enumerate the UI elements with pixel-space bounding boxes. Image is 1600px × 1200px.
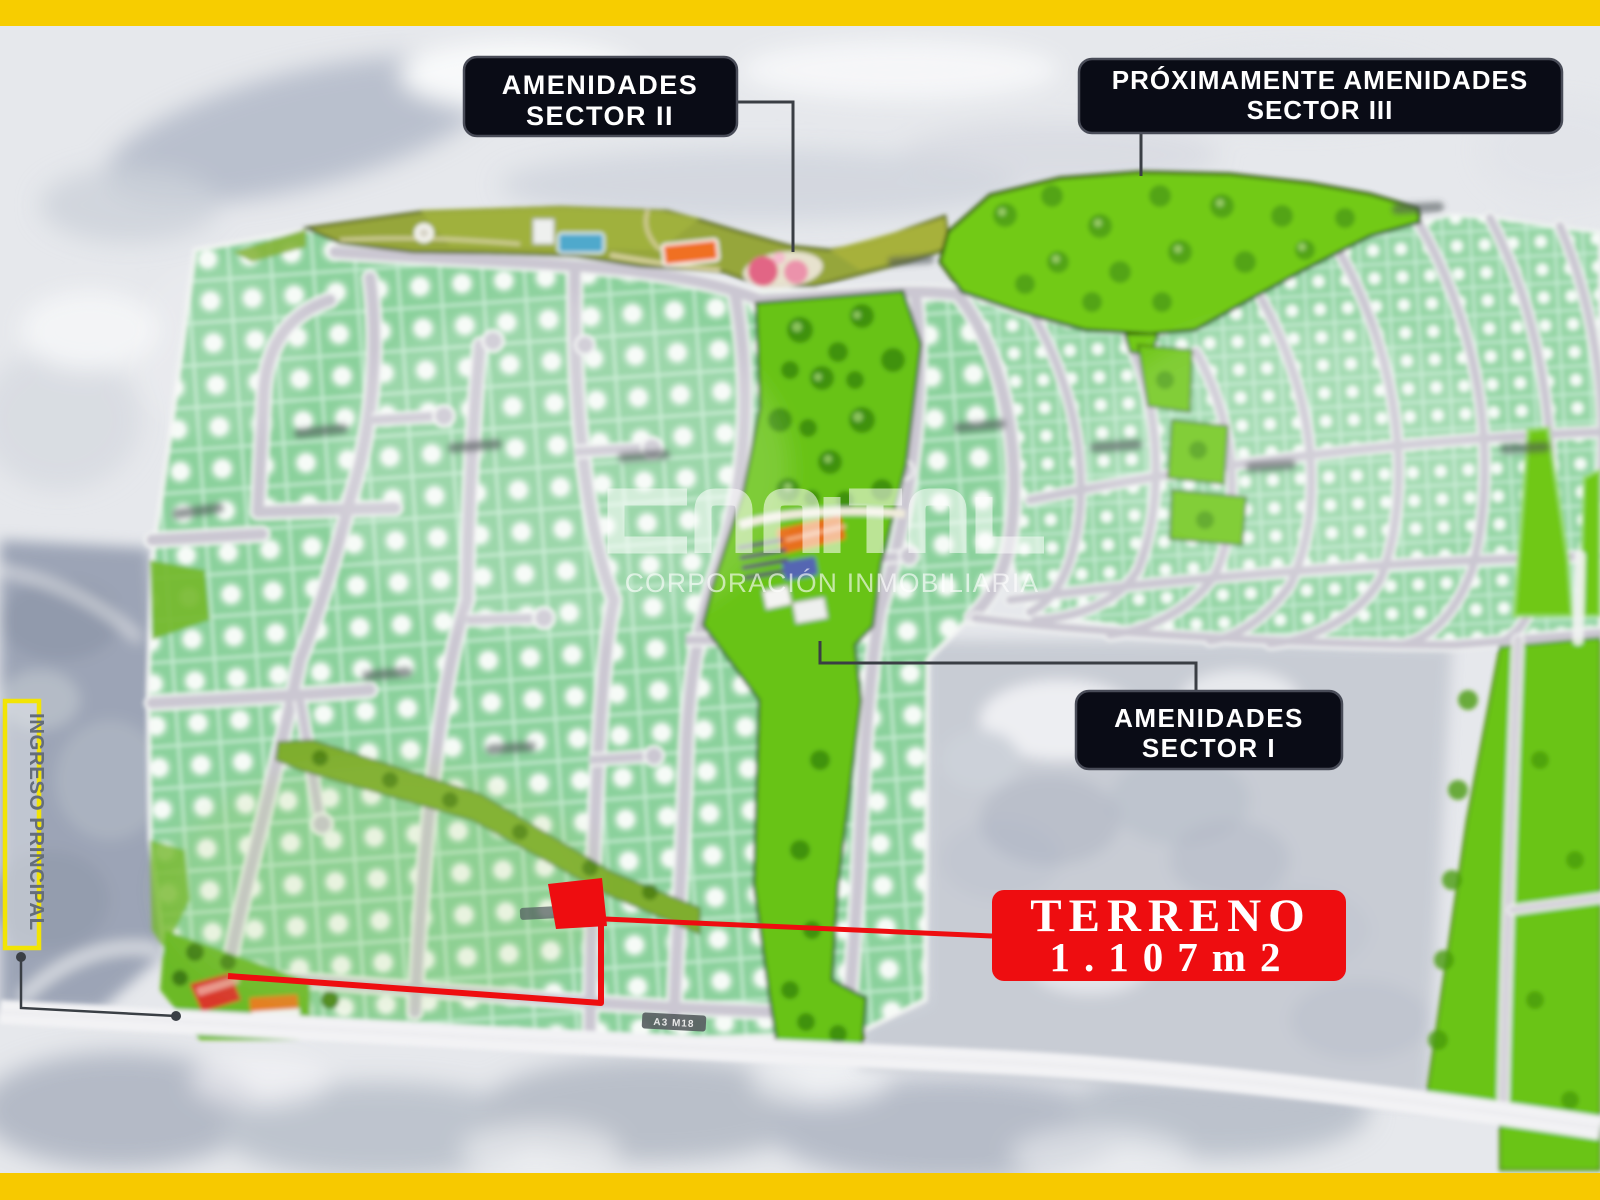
svg-text:1.107m2: 1.107m2 [1050,934,1295,980]
svg-text:SECTOR I: SECTOR I [1142,733,1276,763]
svg-text:AMENIDADES: AMENIDADES [502,70,699,100]
svg-text:CORPORACIÓN INMOBILIARIA: CORPORACIÓN INMOBILIARIA [625,568,1040,598]
svg-text:A3 M18: A3 M18 [653,1017,695,1030]
svg-text:PRÓXIMAMENTE AMENIDADES: PRÓXIMAMENTE AMENIDADES [1112,65,1528,95]
svg-text:INGRESO PRINCIPAL: INGRESO PRINCIPAL [25,713,48,931]
svg-text:AMENIDADES: AMENIDADES [1114,703,1304,733]
svg-text:SECTOR II: SECTOR II [526,101,674,131]
svg-text:SECTOR III: SECTOR III [1247,95,1394,125]
